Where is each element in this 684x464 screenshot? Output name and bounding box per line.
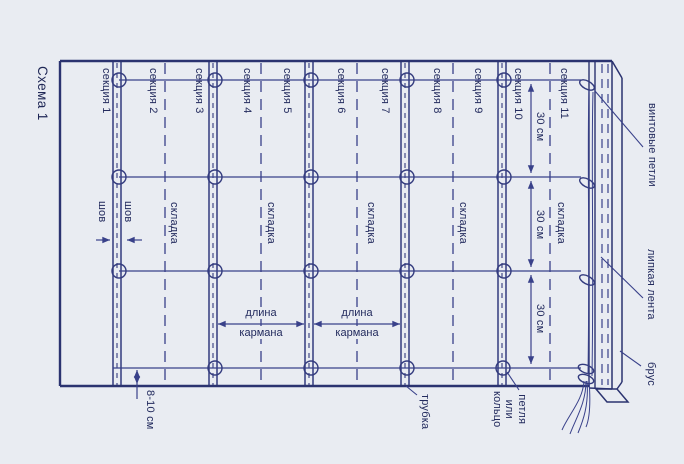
bottom-offset-label: 8-10 см bbox=[143, 390, 156, 430]
ring-note: петля или кольцо bbox=[491, 391, 529, 427]
pocket-length-1-line2: кармана bbox=[226, 327, 296, 339]
pocket-length-1-line1: длина bbox=[226, 307, 296, 319]
fold-label-1: складка bbox=[167, 202, 180, 244]
ring-note-line1: петля bbox=[516, 391, 529, 427]
section-label-6: секция 6 bbox=[334, 68, 347, 114]
section-label-7: секция 7 bbox=[378, 68, 391, 114]
fold-label-3: складка bbox=[364, 202, 377, 244]
ring-note-line2: или bbox=[503, 391, 516, 427]
screw-loops bbox=[577, 78, 596, 386]
section-label-2: секция 2 bbox=[146, 68, 159, 114]
section-label-1: секция 1 bbox=[99, 68, 112, 114]
spacing-label-1: 30 см bbox=[533, 112, 546, 141]
section-label-5: секция 5 bbox=[280, 68, 293, 114]
seam-label-left: шов bbox=[95, 201, 108, 222]
section-label-8: секция 8 bbox=[430, 68, 443, 114]
fold-label-5: складка bbox=[554, 202, 567, 244]
cord-guide-lines bbox=[113, 80, 581, 368]
beam-label: брус bbox=[644, 362, 657, 386]
spacing-label-3: 30 см bbox=[533, 304, 546, 333]
fold-label-2: складка bbox=[264, 202, 277, 244]
section-label-4: секция 4 bbox=[240, 68, 253, 114]
section-label-10: секция 10 bbox=[511, 68, 524, 120]
sticky-tape-dashes bbox=[602, 64, 608, 385]
seam-label-right: шов bbox=[121, 201, 134, 222]
section-label-3: секция 3 bbox=[192, 68, 205, 114]
tube-label: трубка bbox=[418, 394, 431, 429]
ring-note-line3: кольцо bbox=[491, 391, 504, 427]
screw-loops-label: винтовые петли bbox=[645, 103, 658, 187]
section-label-11: секция 11 bbox=[557, 68, 570, 119]
sticky-tape-label: липкая лента bbox=[644, 249, 657, 320]
roman-shade-sewing-scheme: Схема 1 секция 1 секция 2 секция 3 секци… bbox=[0, 0, 684, 464]
fold-label-4: складка bbox=[456, 202, 469, 244]
pocket-length-2-line2: кармана bbox=[322, 327, 392, 339]
section-label-9: секция 9 bbox=[471, 68, 484, 114]
pocket-length-2-line1: длина bbox=[322, 307, 392, 319]
spacing-label-2: 30 см bbox=[533, 210, 546, 239]
scheme-title: Схема 1 bbox=[36, 66, 49, 121]
